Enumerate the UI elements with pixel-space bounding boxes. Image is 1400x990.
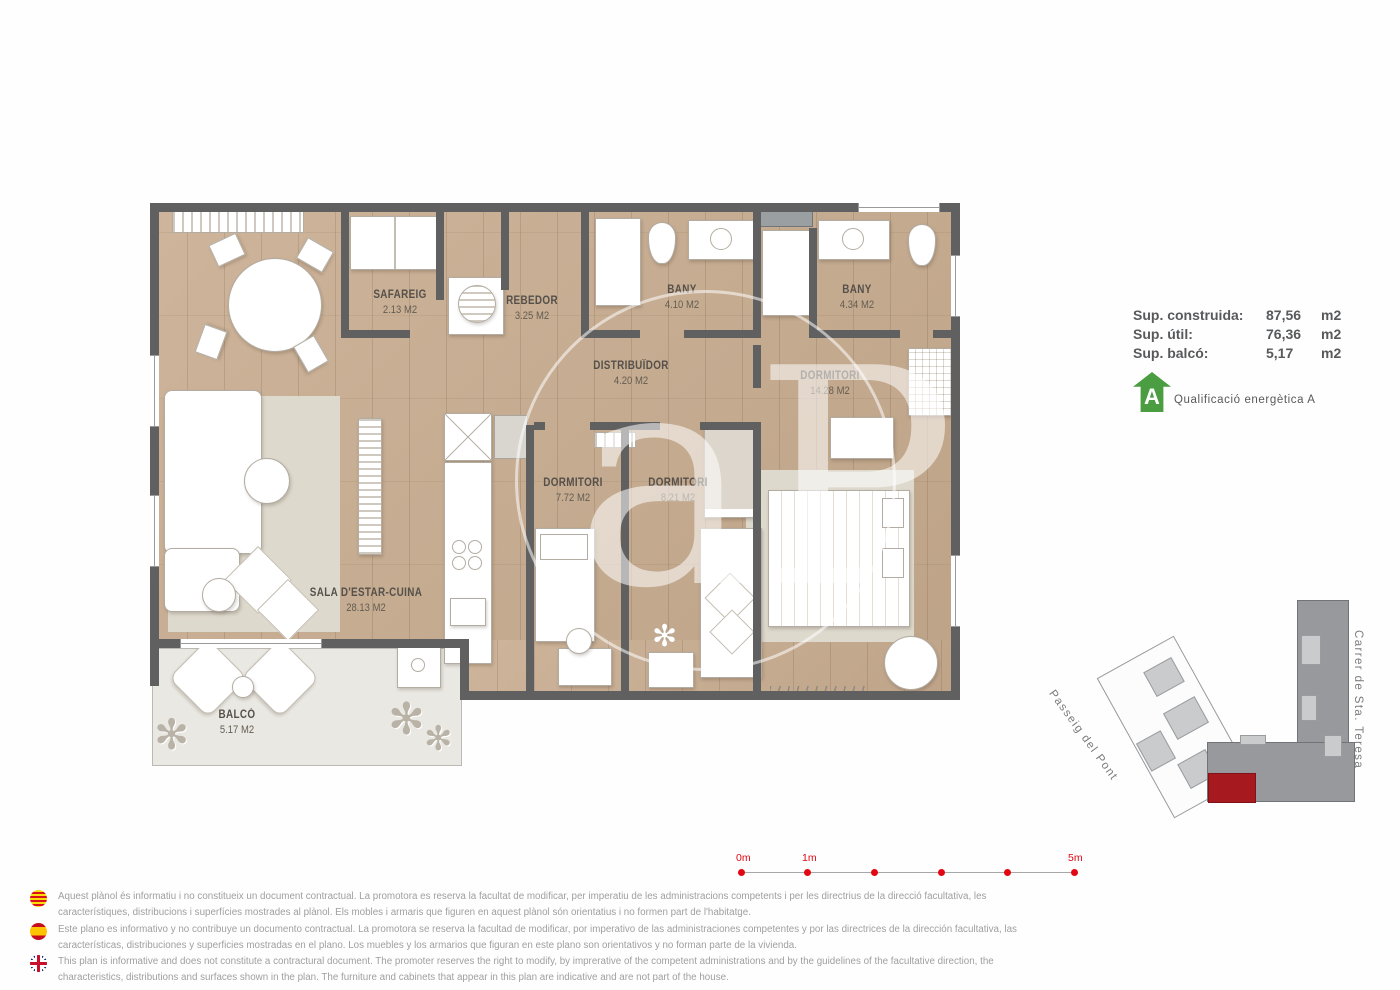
scale-label-0m: 0m (736, 852, 751, 864)
summary-row: Sup. construida: 87,56 m2 (1133, 306, 1361, 325)
scale-line (742, 872, 1075, 873)
hob-burner (452, 556, 466, 570)
scale-bar: 0m 1m 5m (738, 850, 1083, 880)
summary-value: 76,36 (1266, 325, 1321, 344)
hob-burner (452, 540, 466, 554)
plant: ✻ (424, 722, 453, 756)
disclaimer-catalan: Aquest plànol és informatiu i no constit… (30, 889, 1030, 920)
faucet (411, 658, 425, 672)
scale-dot (1004, 869, 1011, 876)
site-building-unit (1240, 735, 1266, 745)
summary-unit: m2 (1321, 325, 1361, 344)
catalonia-flag-icon (30, 890, 47, 907)
plant: ✻ (388, 698, 425, 742)
room-label-safareig: SAFAREIG 2.13 M2 (357, 288, 443, 318)
disclaimer-text: This plan is informative and does not co… (58, 954, 1018, 985)
room-name: SALA D'ESTAR-CUINA (302, 586, 431, 601)
room-name: REBEDOR (489, 294, 575, 309)
uk-flag-icon (30, 955, 47, 972)
energy-rating-letter: A (1144, 382, 1160, 412)
sink-basin (842, 228, 864, 250)
room-area: 3.25 M2 (489, 309, 575, 324)
wall (341, 330, 410, 338)
room-area: 2.13 M2 (357, 303, 443, 318)
summary-label: Sup. balcó: (1133, 344, 1266, 363)
scale-label-1m: 1m (802, 852, 817, 864)
sink-basin (710, 228, 732, 250)
scale-label-5m: 5m (1068, 852, 1083, 864)
site-building-unit (1301, 635, 1321, 665)
wall (341, 212, 349, 338)
summary-label: Sup. construida: (1133, 306, 1266, 325)
shower (595, 218, 641, 306)
oven (444, 413, 492, 461)
wall (460, 639, 469, 700)
wall (501, 212, 509, 290)
room-area: 5.17 M2 (194, 723, 280, 738)
hob-burner (468, 540, 482, 554)
pouf (202, 578, 236, 612)
summary-value: 87,56 (1266, 306, 1321, 325)
hob-burner (468, 556, 482, 570)
summary-unit: m2 (1321, 306, 1361, 325)
summary-value: 5,17 (1266, 344, 1321, 363)
room-name: BANY (814, 283, 900, 298)
scale-dot (871, 869, 878, 876)
energy-rating-label: Qualificació energètica A (1174, 394, 1316, 406)
room-label-rebedor: REBEDOR 3.25 M2 (489, 294, 575, 324)
tv-sideboard (358, 418, 382, 555)
summary-row: Sup. útil: 76,36 m2 (1133, 325, 1361, 344)
scale-dot (804, 869, 811, 876)
wall-stub (150, 648, 159, 686)
room-name: BALCÓ (194, 708, 280, 723)
summary-unit: m2 (1321, 344, 1361, 363)
disclaimer-english: This plan is informative and does not co… (30, 954, 1030, 985)
site-building-unit (1301, 695, 1317, 721)
disclaimer-text: Aquest plànol és informatiu i no constit… (58, 889, 1018, 920)
side-table (244, 458, 290, 504)
scale-dot (738, 869, 745, 876)
site-map (1090, 585, 1390, 835)
disclaimer-text: Este plano es informativo y no contribuy… (58, 922, 1018, 953)
watermark-logo: aP (575, 330, 956, 630)
room-area: 28.13 M2 (302, 601, 431, 616)
balcony-table (232, 676, 254, 698)
spain-flag-icon (30, 923, 47, 940)
balcony-door (180, 639, 322, 648)
surface-summary: Sup. construida: 87,56 m2 Sup. útil: 76,… (1133, 306, 1361, 363)
room-name: SAFAREIG (357, 288, 443, 303)
window (150, 355, 159, 427)
floor-plan: ✻ ✻ ✻ ✻ (0, 0, 1400, 990)
room-label-balco: BALCÓ 5.17 M2 (194, 708, 280, 738)
wall (150, 203, 960, 212)
floorplan-page: ✻ ✻ ✻ ✻ (0, 0, 1400, 990)
kitchen-sink (450, 598, 486, 626)
wall (436, 212, 444, 300)
laundry-shelf (350, 216, 440, 270)
site-building-unit (1324, 735, 1342, 757)
site-highlighted-unit (1208, 773, 1256, 803)
scale-dot (938, 869, 945, 876)
wall (460, 691, 960, 700)
window (858, 203, 940, 212)
disclaimer-spanish: Este plano es informativo y no contribuy… (30, 922, 1030, 953)
plant: ✻ (154, 714, 189, 756)
summary-row: Sup. balcó: 5,17 m2 (1133, 344, 1361, 363)
scale-dot (1071, 869, 1078, 876)
window (150, 495, 159, 567)
street-label-right: Carrer de Sta. Teresa (1352, 630, 1364, 769)
room-label-sala-estar: SALA D'ESTAR-CUINA 28.13 M2 (302, 586, 431, 616)
summary-label: Sup. útil: (1133, 325, 1266, 344)
